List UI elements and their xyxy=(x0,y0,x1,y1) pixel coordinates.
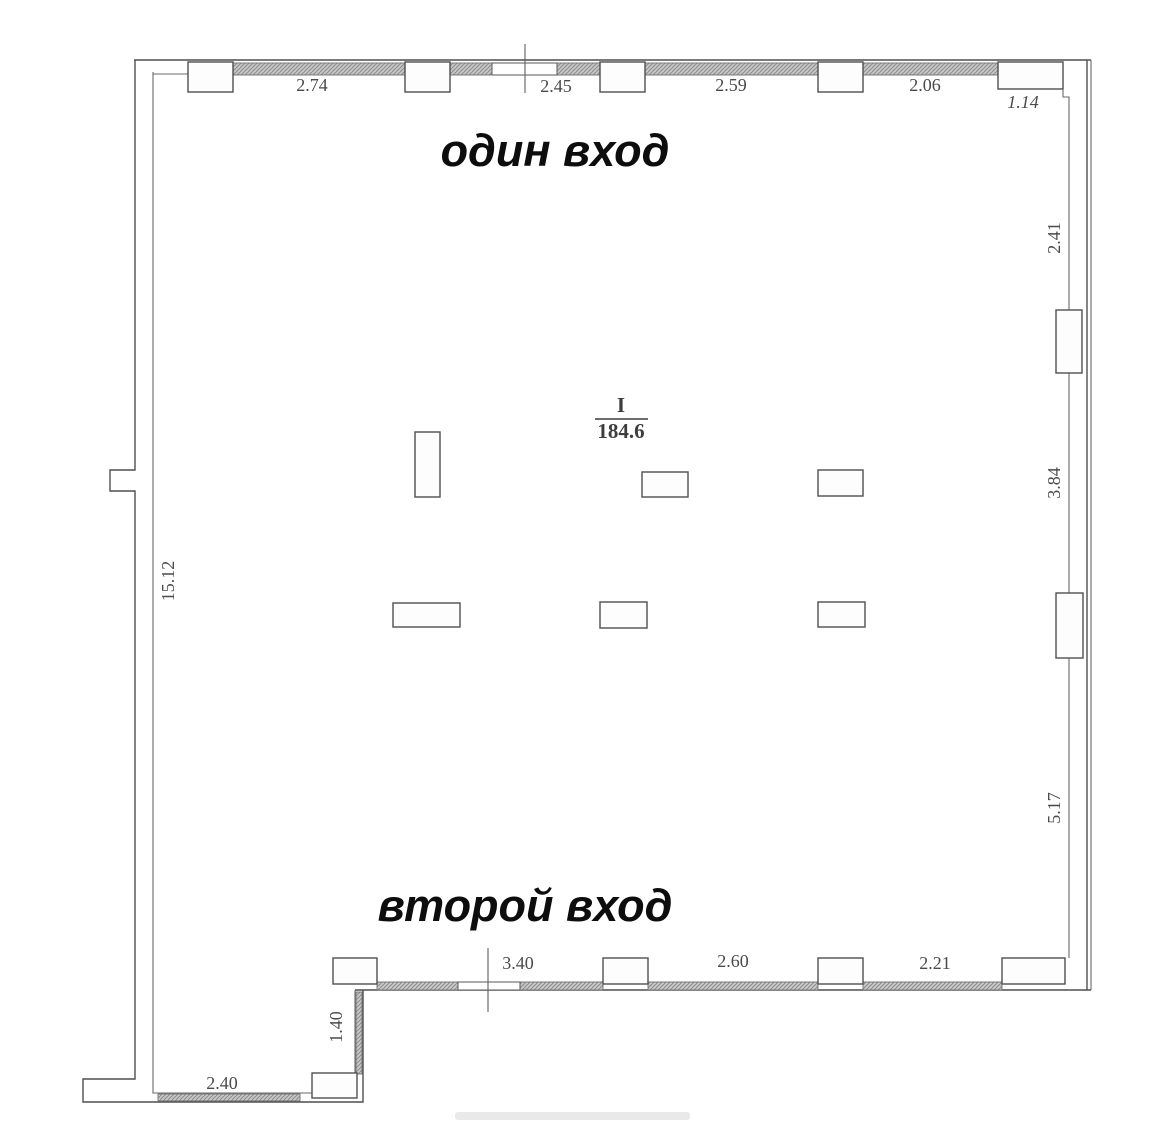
dim-top-2: 2.45 xyxy=(540,76,572,96)
dim-bottom-3: 2.21 xyxy=(919,953,951,973)
wall-hatch-segment xyxy=(645,63,818,75)
dim-top-5: 1.14 xyxy=(1007,92,1039,112)
pier xyxy=(1002,958,1065,984)
pier xyxy=(312,1073,357,1098)
wall-hatch-segment xyxy=(356,992,362,1074)
wall-hatch-segment xyxy=(557,63,600,75)
room-area-label: 184.6 xyxy=(597,419,644,443)
pier xyxy=(818,62,863,92)
left-wall-inner-line xyxy=(153,72,355,1093)
column xyxy=(642,472,688,497)
dim-right-1: 2.41 xyxy=(1044,222,1064,254)
dim-annex-width: 2.40 xyxy=(206,1073,238,1093)
entrance-one-label: один вход xyxy=(441,125,670,176)
pier xyxy=(333,958,377,984)
right-wall-inner-line xyxy=(1063,89,1069,958)
floor-plan-drawing: I 184.6 один вход второй вход 2.74 2.45 … xyxy=(0,0,1150,1122)
room-number-label: I xyxy=(617,393,625,417)
room-area-block: I 184.6 xyxy=(595,393,648,443)
wall-hatch-segment xyxy=(233,63,405,75)
wall-hatch-segment xyxy=(648,982,818,990)
scan-smudge xyxy=(455,1112,690,1120)
bottom-wall xyxy=(333,948,1091,1012)
top-wall xyxy=(134,44,1091,93)
pier xyxy=(188,62,233,92)
pier xyxy=(405,62,450,92)
left-wall-outer-line xyxy=(83,60,363,1102)
pier xyxy=(998,62,1063,89)
dim-annex-height: 1.40 xyxy=(326,1011,346,1043)
dim-top-1: 2.74 xyxy=(296,75,328,95)
pier xyxy=(600,62,645,92)
column xyxy=(600,602,647,628)
pier xyxy=(818,958,863,984)
dim-top-4: 2.06 xyxy=(909,75,941,95)
dim-right-3: 5.17 xyxy=(1044,792,1064,824)
column xyxy=(415,432,440,497)
interior-columns xyxy=(393,432,865,628)
pier xyxy=(1056,310,1082,373)
dim-left-1: 15.12 xyxy=(158,561,178,602)
entrance-opening-bottom xyxy=(458,982,520,990)
column xyxy=(393,603,460,627)
dim-bottom-2: 2.60 xyxy=(717,951,749,971)
wall-hatch-segment xyxy=(863,63,998,75)
left-wall xyxy=(83,60,363,1102)
wall-hatch-segment xyxy=(377,982,458,990)
wall-hatch-segment xyxy=(863,982,1002,990)
dim-bottom-1: 3.40 xyxy=(502,953,534,973)
dim-right-2: 3.84 xyxy=(1044,467,1064,499)
column xyxy=(818,470,863,496)
dim-top-3: 2.59 xyxy=(715,75,747,95)
column xyxy=(818,602,865,627)
wall-hatch-segment xyxy=(450,63,492,75)
entrance-two-label: второй вход xyxy=(378,880,673,931)
floor-plan-page: I 184.6 один вход второй вход 2.74 2.45 … xyxy=(0,0,1150,1122)
pier xyxy=(1056,593,1083,658)
pier xyxy=(603,958,648,984)
dimension-labels: 2.74 2.45 2.59 2.06 1.14 2.41 3.84 5.17 … xyxy=(158,75,1064,1093)
wall-hatch-segment xyxy=(520,982,603,990)
wall-hatch-segment xyxy=(158,1094,300,1101)
right-wall xyxy=(1056,60,1091,990)
